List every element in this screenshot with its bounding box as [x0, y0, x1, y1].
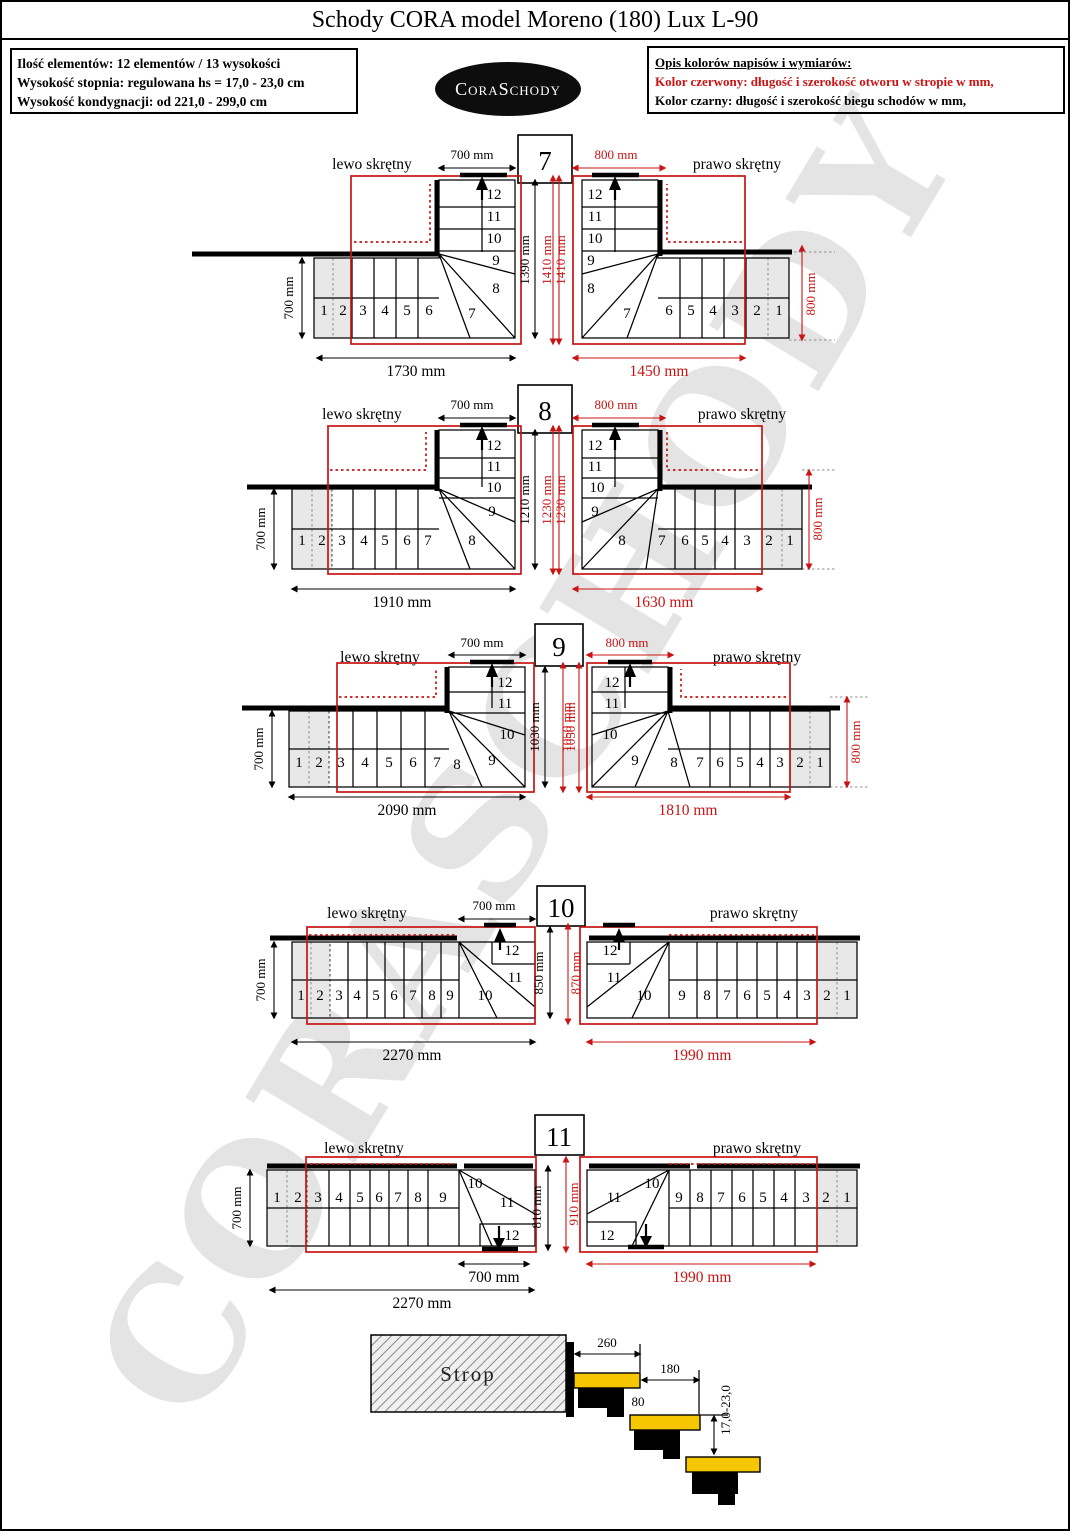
- diagram-label: lewo skrętny: [324, 1140, 404, 1157]
- step-number: 1: [273, 1190, 281, 1206]
- step-number: 5: [385, 755, 393, 771]
- step-number: 3: [743, 533, 751, 549]
- step-number: 9: [675, 1190, 683, 1206]
- dim-label: 700 mm: [451, 397, 494, 412]
- step-number: 8: [492, 281, 500, 297]
- step-number: 6: [403, 533, 411, 549]
- dim-label: 2090 mm: [378, 802, 437, 819]
- step-number: 12: [588, 438, 603, 454]
- step-number: 2: [765, 533, 773, 549]
- step-number: 2: [294, 1190, 302, 1206]
- step-number: 3: [359, 303, 367, 319]
- diagram-10-left-turn: lewo skrętny 700 mm 700 mm 2270 mm 850 m…: [253, 898, 583, 1064]
- variant-number: 10: [548, 893, 575, 923]
- step-number: 4: [335, 1190, 343, 1206]
- step-number: 2: [339, 303, 347, 319]
- step-number: 4: [709, 303, 717, 319]
- step-number: 10: [478, 988, 493, 1004]
- step-number: 9: [488, 753, 496, 769]
- dim-label: 910 mm: [566, 1183, 581, 1226]
- diagram-label: lewo skrętny: [327, 905, 407, 922]
- diagram-label: prawo skrętny: [713, 1140, 801, 1157]
- step-number: 12: [600, 1228, 615, 1244]
- dim-run-height: 1390 mm: [517, 180, 535, 338]
- step-number: 1: [298, 533, 306, 549]
- dim-left-width: 700 mm: [253, 942, 274, 1018]
- step-number: 6: [390, 988, 398, 1004]
- row-variant-7: 7 lewo skrętny 700 mm 700 mm 1730 mm 139…: [192, 135, 835, 380]
- dim-going: 180: [642, 1361, 699, 1414]
- step-number: 10: [590, 480, 605, 496]
- step-number: 5: [372, 988, 380, 1004]
- step-number: 2: [823, 988, 831, 1004]
- dim-tread-depth: 260: [575, 1335, 640, 1372]
- dim-label: 800 mm: [595, 147, 638, 162]
- dim-label: 1630 mm: [635, 594, 694, 611]
- diagram-11-right-turn: prawo skrętny 1990 mm 123456789101112: [580, 1140, 860, 1286]
- dim-label: 700 mm: [281, 277, 296, 320]
- dim-label: 1410 mm: [553, 235, 568, 284]
- step-number: 11: [588, 459, 602, 475]
- step-number: 6: [743, 988, 751, 1004]
- step-number: 4: [381, 303, 389, 319]
- step-number: 5: [687, 303, 695, 319]
- color-legend: Opis kolorów napisów i wymiarów: Kolor c…: [647, 46, 1065, 114]
- step-number: 4: [353, 988, 361, 1004]
- step-number: 4: [721, 533, 729, 549]
- variant-number: 8: [538, 396, 552, 426]
- step-number: 8: [414, 1190, 422, 1206]
- dim-run-length: 2270 mm: [292, 1042, 535, 1064]
- dim-opening-length: 1630 mm: [573, 589, 762, 611]
- dim-label: 17,0-23,0: [718, 1385, 733, 1435]
- step-number: 10: [487, 480, 502, 496]
- dim-top-width: 700 mm: [459, 898, 535, 919]
- step-number: 5: [736, 755, 744, 771]
- dim-opening-length: 1810 mm: [587, 797, 790, 819]
- dim-opening-length: 1990 mm: [587, 1042, 815, 1064]
- step-number: 12: [588, 187, 603, 203]
- step-number: 1: [816, 755, 824, 771]
- diagram-label: prawo skrętny: [693, 156, 781, 173]
- dim-opening-height: 910 mm: [566, 1157, 581, 1252]
- dim-label: 700 mm: [468, 1269, 519, 1286]
- step-number: 8: [428, 988, 436, 1004]
- diagram-11-left-turn: lewo skrętny 700 mm 810 mm 910 mm 700 mm…: [229, 1140, 581, 1312]
- dim-label: 700 mm: [473, 898, 516, 913]
- diagram-label: lewo skrętny: [322, 406, 402, 423]
- dim-top-width: 700 mm: [439, 397, 515, 418]
- step-number: 2: [822, 1190, 830, 1206]
- legend-black-line: Kolor czarny: długość i szerokość biegu …: [655, 91, 1057, 110]
- info-line-elements: Ilość elementów: 12 elementów / 13 wysok…: [17, 54, 351, 73]
- dim-label: 1730 mm: [387, 363, 446, 380]
- info-line-step-height: Wysokość stopnia: regulowana hs = 17,0 -…: [17, 73, 351, 92]
- step-number: 10: [588, 231, 603, 247]
- step-number: 1: [775, 303, 783, 319]
- step-number: 5: [356, 1190, 364, 1206]
- step-number: 4: [783, 988, 791, 1004]
- step-number: 2: [318, 533, 326, 549]
- variant-number: 7: [538, 146, 552, 176]
- step-number: 3: [337, 755, 345, 771]
- step-number: 12: [505, 943, 520, 959]
- row-variant-9: 9 lewo skrętny 700 mm 700 mm 2090 mm 103…: [242, 624, 868, 819]
- step-number: 8: [587, 281, 595, 297]
- diagram-8-right-turn: prawo skrętny 800 mm 1230 mm 1630 mm 800…: [539, 397, 835, 611]
- dim-left-width: 700 mm: [251, 711, 272, 787]
- wall-line: [247, 430, 439, 491]
- step-number: 9: [678, 988, 686, 1004]
- dim-label: 800 mm: [848, 721, 863, 764]
- step-number: 9: [591, 504, 599, 520]
- dim-label: 1050 mm: [559, 702, 574, 751]
- info-box: Ilość elementów: 12 elementów / 13 wysok…: [10, 48, 358, 114]
- dim-label: 700 mm: [251, 728, 266, 771]
- dim-run-height: 810 mm: [529, 1166, 548, 1250]
- step-number: 9: [446, 988, 454, 1004]
- dim-top-width: 700 mm: [449, 635, 525, 655]
- wall-line: [192, 180, 439, 256]
- step-number: 1: [295, 755, 303, 771]
- diagram-7-right-turn: prawo skrętny 800 mm 1410 mm 1450 mm 800…: [539, 147, 835, 380]
- step-number: 7: [433, 755, 441, 771]
- dim-label: 1230 mm: [539, 475, 554, 524]
- step-number: 10: [468, 1176, 483, 1192]
- step-number: 3: [776, 755, 784, 771]
- step-number: 8: [670, 755, 678, 771]
- dim-run-length: 1910 mm: [292, 589, 515, 611]
- step-number: 11: [500, 1195, 514, 1211]
- exit-arrow: [613, 928, 625, 942]
- step-number: 4: [360, 533, 368, 549]
- dim-run-height: 1210 mm: [517, 430, 535, 569]
- step-number: 9: [631, 753, 639, 769]
- dim-label: 1210 mm: [517, 475, 532, 524]
- step-number: 8: [703, 988, 711, 1004]
- step-number: 8: [696, 1190, 704, 1206]
- wall-line: [242, 667, 449, 713]
- legend-heading: Opis kolorów napisów i wymiarów:: [655, 53, 1057, 72]
- diagram-9-left-turn: lewo skrętny 700 mm 700 mm 2090 mm 1030 …: [242, 635, 578, 819]
- step-number: 12: [505, 1228, 520, 1244]
- dim-run-length: 2090 mm: [289, 797, 525, 819]
- step-number: 11: [607, 1190, 621, 1206]
- dim-label: 260: [597, 1335, 617, 1350]
- info-line-storey-height: Wysokość kondygnacji: od 221,0 - 299,0 c…: [17, 92, 351, 111]
- step-number: 10: [487, 231, 502, 247]
- tread: [686, 1457, 760, 1472]
- step-number: 8: [468, 533, 476, 549]
- dim-label: 850 mm: [531, 952, 546, 995]
- brand-logo: CoraSchody: [435, 62, 581, 116]
- dim-run-height: 850 mm: [531, 927, 550, 1018]
- dim-label: 700 mm: [461, 635, 504, 650]
- dim-label: 1990 mm: [673, 1047, 732, 1064]
- wall-line: [670, 667, 840, 713]
- dim-opening-height: 1410 mm: [553, 176, 568, 344]
- dim-opening-width: 800 mm: [587, 635, 673, 655]
- step-number: 6: [375, 1190, 383, 1206]
- step-number: 12: [487, 438, 502, 454]
- dim-label: 810 mm: [529, 1186, 544, 1229]
- dim-label: 800 mm: [606, 635, 649, 650]
- dim-label: 1910 mm: [373, 594, 432, 611]
- wall-line: [660, 430, 812, 491]
- diagram-label: prawo skrętny: [710, 905, 798, 922]
- step-number: 10: [500, 727, 515, 743]
- strop-label: Strop: [440, 1362, 496, 1386]
- step-number: 5: [701, 533, 709, 549]
- wall-line: [660, 180, 792, 256]
- dim-opening-width: 800 mm: [573, 147, 665, 168]
- step-number: 3: [803, 988, 811, 1004]
- step-number: 9: [492, 253, 500, 269]
- legend-red-line: Kolor czerwony: długość i szerokość otwo…: [655, 72, 1057, 91]
- step-number: 1: [297, 988, 305, 1004]
- stair-diagrams: 7 lewo skrętny 700 mm 700 mm 1730 mm 139…: [2, 2, 1070, 1531]
- step-number: 7: [696, 755, 704, 771]
- step-number: 3: [802, 1190, 810, 1206]
- step-number: 7: [394, 1190, 402, 1206]
- dim-label: 180: [660, 1361, 680, 1376]
- dim-opening-length: 1450 mm: [573, 358, 745, 380]
- step-number: 6: [409, 755, 417, 771]
- step-number: 1: [320, 303, 328, 319]
- dim-turn-width: 700 mm: [459, 1264, 529, 1286]
- step-number: 11: [508, 970, 522, 986]
- variant-number: 9: [552, 632, 566, 662]
- exit-arrow: [624, 663, 636, 677]
- step-number: 1: [786, 533, 794, 549]
- step-number: 4: [780, 1190, 788, 1206]
- dim-nose-label: 80: [632, 1394, 645, 1409]
- step-number: 10: [645, 1176, 660, 1192]
- step-number: 4: [361, 755, 369, 771]
- step-number: 5: [403, 303, 411, 319]
- dim-left-width: 700 mm: [253, 489, 274, 569]
- step-number: 11: [487, 209, 501, 225]
- step-number: 11: [605, 696, 619, 712]
- step-number: 9: [587, 253, 595, 269]
- step-number: 6: [716, 755, 724, 771]
- step-number: 2: [753, 303, 761, 319]
- spec-sheet-page: CORASCHODY Schody CORA model Moreno (180…: [0, 0, 1070, 1531]
- dim-side-opening: 800 mm: [802, 246, 818, 340]
- dim-side-opening: 800 mm: [847, 697, 863, 787]
- dim-label: 800 mm: [810, 498, 825, 541]
- step-number: 7: [723, 988, 731, 1004]
- dim-label: 700 mm: [451, 147, 494, 162]
- step-number: 6: [738, 1190, 746, 1206]
- step-number: 8: [453, 757, 461, 773]
- dim-left-width: 700 mm: [229, 1170, 250, 1246]
- row-variant-11: 11 lewo skrętny 700 mm 810 mm 910 mm 700…: [229, 1115, 860, 1312]
- step-number: 1: [843, 1190, 851, 1206]
- step-number: 7: [409, 988, 417, 1004]
- step-number: 5: [381, 533, 389, 549]
- dim-label: 700 mm: [253, 508, 268, 551]
- step-number: 12: [498, 675, 513, 691]
- step-number: 3: [731, 303, 739, 319]
- step-number: 4: [756, 755, 764, 771]
- step-number: 7: [424, 533, 432, 549]
- tread: [574, 1373, 640, 1388]
- step-number: 9: [488, 504, 496, 520]
- step-number: 12: [605, 675, 620, 691]
- section-detail: Strop 260 180 80 17,0-23,0: [371, 1335, 760, 1505]
- exit-arrow: [609, 176, 621, 190]
- tread: [630, 1415, 700, 1430]
- diagram-9-right-turn: prawo skrętny 800 mm 1050 mm 1810 mm 800…: [559, 635, 868, 819]
- dim-run-length: 2270 mm: [270, 1290, 534, 1312]
- step-number: 7: [717, 1190, 725, 1206]
- step-number: 11: [607, 970, 621, 986]
- step-number: 2: [316, 988, 324, 1004]
- dim-run-height: 1030 mm: [527, 667, 545, 787]
- dim-run-length: 1730 mm: [317, 358, 515, 380]
- step-number: 2: [315, 755, 323, 771]
- dim-riser-range: 17,0-23,0: [700, 1385, 733, 1454]
- dim-label: 700 mm: [253, 959, 268, 1002]
- step-number: 11: [588, 209, 602, 225]
- exit-arrow: [486, 663, 498, 677]
- dim-label: 800 mm: [803, 273, 818, 316]
- dim-label: 1990 mm: [673, 1269, 732, 1286]
- step-number: 3: [314, 1190, 322, 1206]
- diagram-label: lewo skrętny: [332, 156, 412, 173]
- dim-label: 2270 mm: [383, 1047, 442, 1064]
- dim-label: 1450 mm: [630, 363, 689, 380]
- dim-label: 1410 mm: [539, 235, 554, 284]
- dim-opening-length: 1990 mm: [587, 1264, 815, 1286]
- step-number: 1: [843, 988, 851, 1004]
- dim-label: 1030 mm: [527, 702, 542, 751]
- dim-label: 1390 mm: [517, 235, 532, 284]
- step-number: 7: [468, 306, 476, 322]
- step-number: 12: [487, 187, 502, 203]
- exit-arrow: [609, 426, 621, 440]
- step-number: 10: [637, 988, 652, 1004]
- dim-opening-height: 1230 mm: [553, 426, 568, 574]
- step-number: 12: [603, 943, 618, 959]
- dim-left-width: 700 mm: [281, 258, 302, 338]
- row-variant-8: 8 lewo skrętny 700 mm 700 mm 1910 mm 121…: [247, 385, 835, 611]
- step-number: 6: [425, 303, 433, 319]
- dim-label: 800 mm: [595, 397, 638, 412]
- step-number: 2: [796, 755, 804, 771]
- step-number: 9: [439, 1190, 447, 1206]
- step-number: 6: [665, 303, 673, 319]
- step-number: 7: [623, 306, 631, 322]
- dim-label: 1230 mm: [553, 475, 568, 524]
- diagram-label: prawo skrętny: [698, 406, 786, 423]
- step-number: 6: [681, 533, 689, 549]
- diagram-10-right-turn: prawo skrętny 1990 mm 123456789101112: [580, 905, 860, 1064]
- variant-number: 11: [546, 1122, 572, 1152]
- step-number: 5: [759, 1190, 767, 1206]
- step-number: 11: [487, 459, 501, 475]
- page-title: Schody CORA model Moreno (180) Lux L-90: [2, 2, 1068, 40]
- row-variant-10: 10 lewo skrętny 700 mm 700 mm 2270 mm 85…: [253, 886, 860, 1064]
- dim-opening-width: 800 mm: [573, 397, 665, 418]
- exit-arrow: [494, 928, 506, 942]
- diagram-7-left-turn: lewo skrętny 700 mm 700 mm 1730 mm 1390 …: [192, 147, 568, 380]
- step-number: 10: [603, 727, 618, 743]
- step-number: 11: [498, 696, 512, 712]
- dim-top-width: 700 mm: [439, 147, 515, 168]
- slab-edge: [566, 1342, 574, 1417]
- step-number: 8: [618, 533, 626, 549]
- dim-label: 1810 mm: [659, 802, 718, 819]
- step-number: 3: [335, 988, 343, 1004]
- dim-label: 700 mm: [229, 1187, 244, 1230]
- step-number: 3: [338, 533, 346, 549]
- dim-label: 2270 mm: [393, 1295, 452, 1312]
- step-number: 7: [658, 533, 666, 549]
- step-number: 5: [763, 988, 771, 1004]
